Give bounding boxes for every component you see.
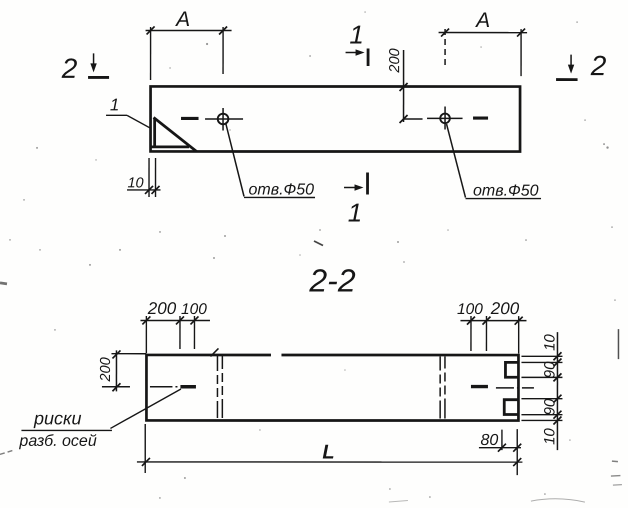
svg-text:A: A	[474, 9, 490, 32]
svg-text:10: 10	[541, 334, 558, 351]
svg-text:200: 200	[147, 299, 177, 318]
svg-text:отв.Ф50: отв.Ф50	[249, 181, 315, 198]
svg-text:90: 90	[541, 398, 558, 415]
svg-text:200: 200	[490, 299, 520, 318]
svg-text:1: 1	[348, 198, 362, 228]
svg-text:2: 2	[590, 50, 607, 81]
svg-text:L: L	[322, 442, 334, 464]
svg-text:2: 2	[61, 53, 78, 84]
svg-text:разб. осей: разб. осей	[18, 433, 96, 450]
svg-text:100: 100	[181, 301, 207, 318]
svg-text:200: 200	[98, 357, 114, 382]
svg-text:1: 1	[110, 95, 119, 114]
svg-text:A: A	[174, 8, 190, 31]
svg-text:10: 10	[541, 428, 558, 445]
svg-text:90: 90	[541, 361, 558, 378]
svg-text:риски: риски	[33, 408, 82, 428]
svg-text:10: 10	[127, 175, 143, 191]
svg-text:200: 200	[387, 48, 403, 73]
svg-text:2-2: 2-2	[308, 262, 355, 298]
svg-text:1: 1	[349, 20, 363, 50]
svg-text:80: 80	[481, 432, 499, 449]
svg-text:100: 100	[457, 301, 483, 318]
svg-text:отв.Ф50: отв.Ф50	[473, 183, 539, 200]
